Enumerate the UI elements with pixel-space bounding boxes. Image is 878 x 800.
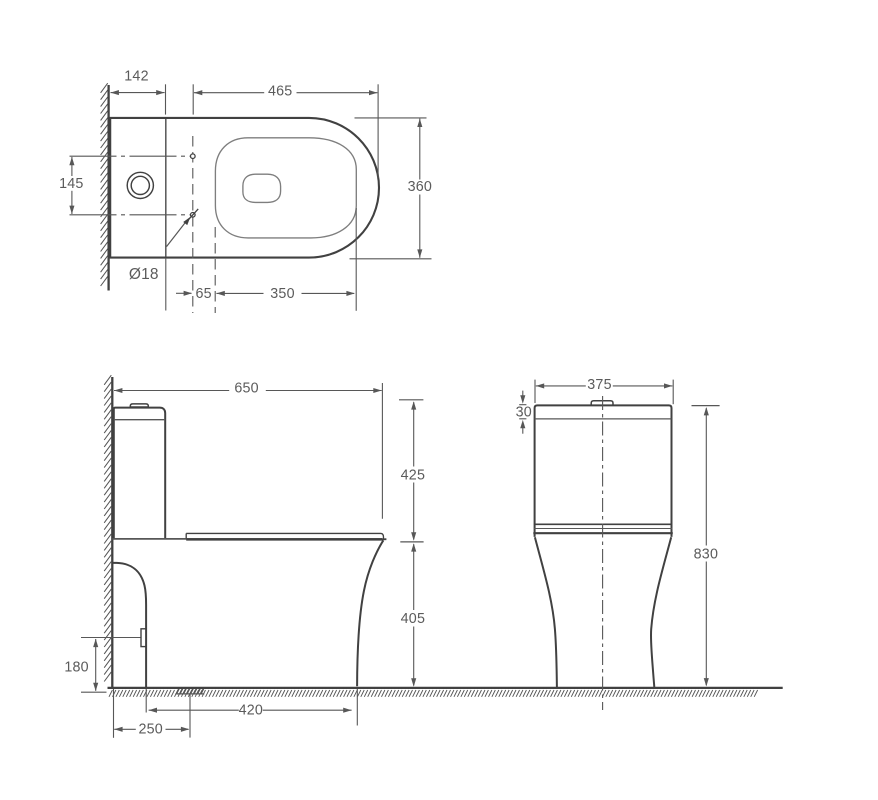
svg-text:650: 650 (234, 381, 258, 397)
svg-text:142: 142 (124, 68, 148, 84)
svg-text:405: 405 (401, 611, 425, 627)
svg-text:65: 65 (195, 286, 211, 302)
svg-text:375: 375 (587, 377, 611, 393)
svg-text:30: 30 (516, 404, 532, 420)
svg-text:180: 180 (64, 660, 88, 676)
svg-text:425: 425 (401, 467, 425, 483)
svg-text:360: 360 (408, 179, 432, 195)
svg-text:350: 350 (270, 286, 294, 302)
svg-text:250: 250 (138, 722, 162, 738)
svg-text:145: 145 (59, 176, 83, 192)
svg-text:Ø18: Ø18 (129, 266, 159, 283)
svg-text:830: 830 (694, 546, 718, 562)
svg-text:420: 420 (239, 703, 263, 719)
svg-text:465: 465 (268, 84, 292, 100)
